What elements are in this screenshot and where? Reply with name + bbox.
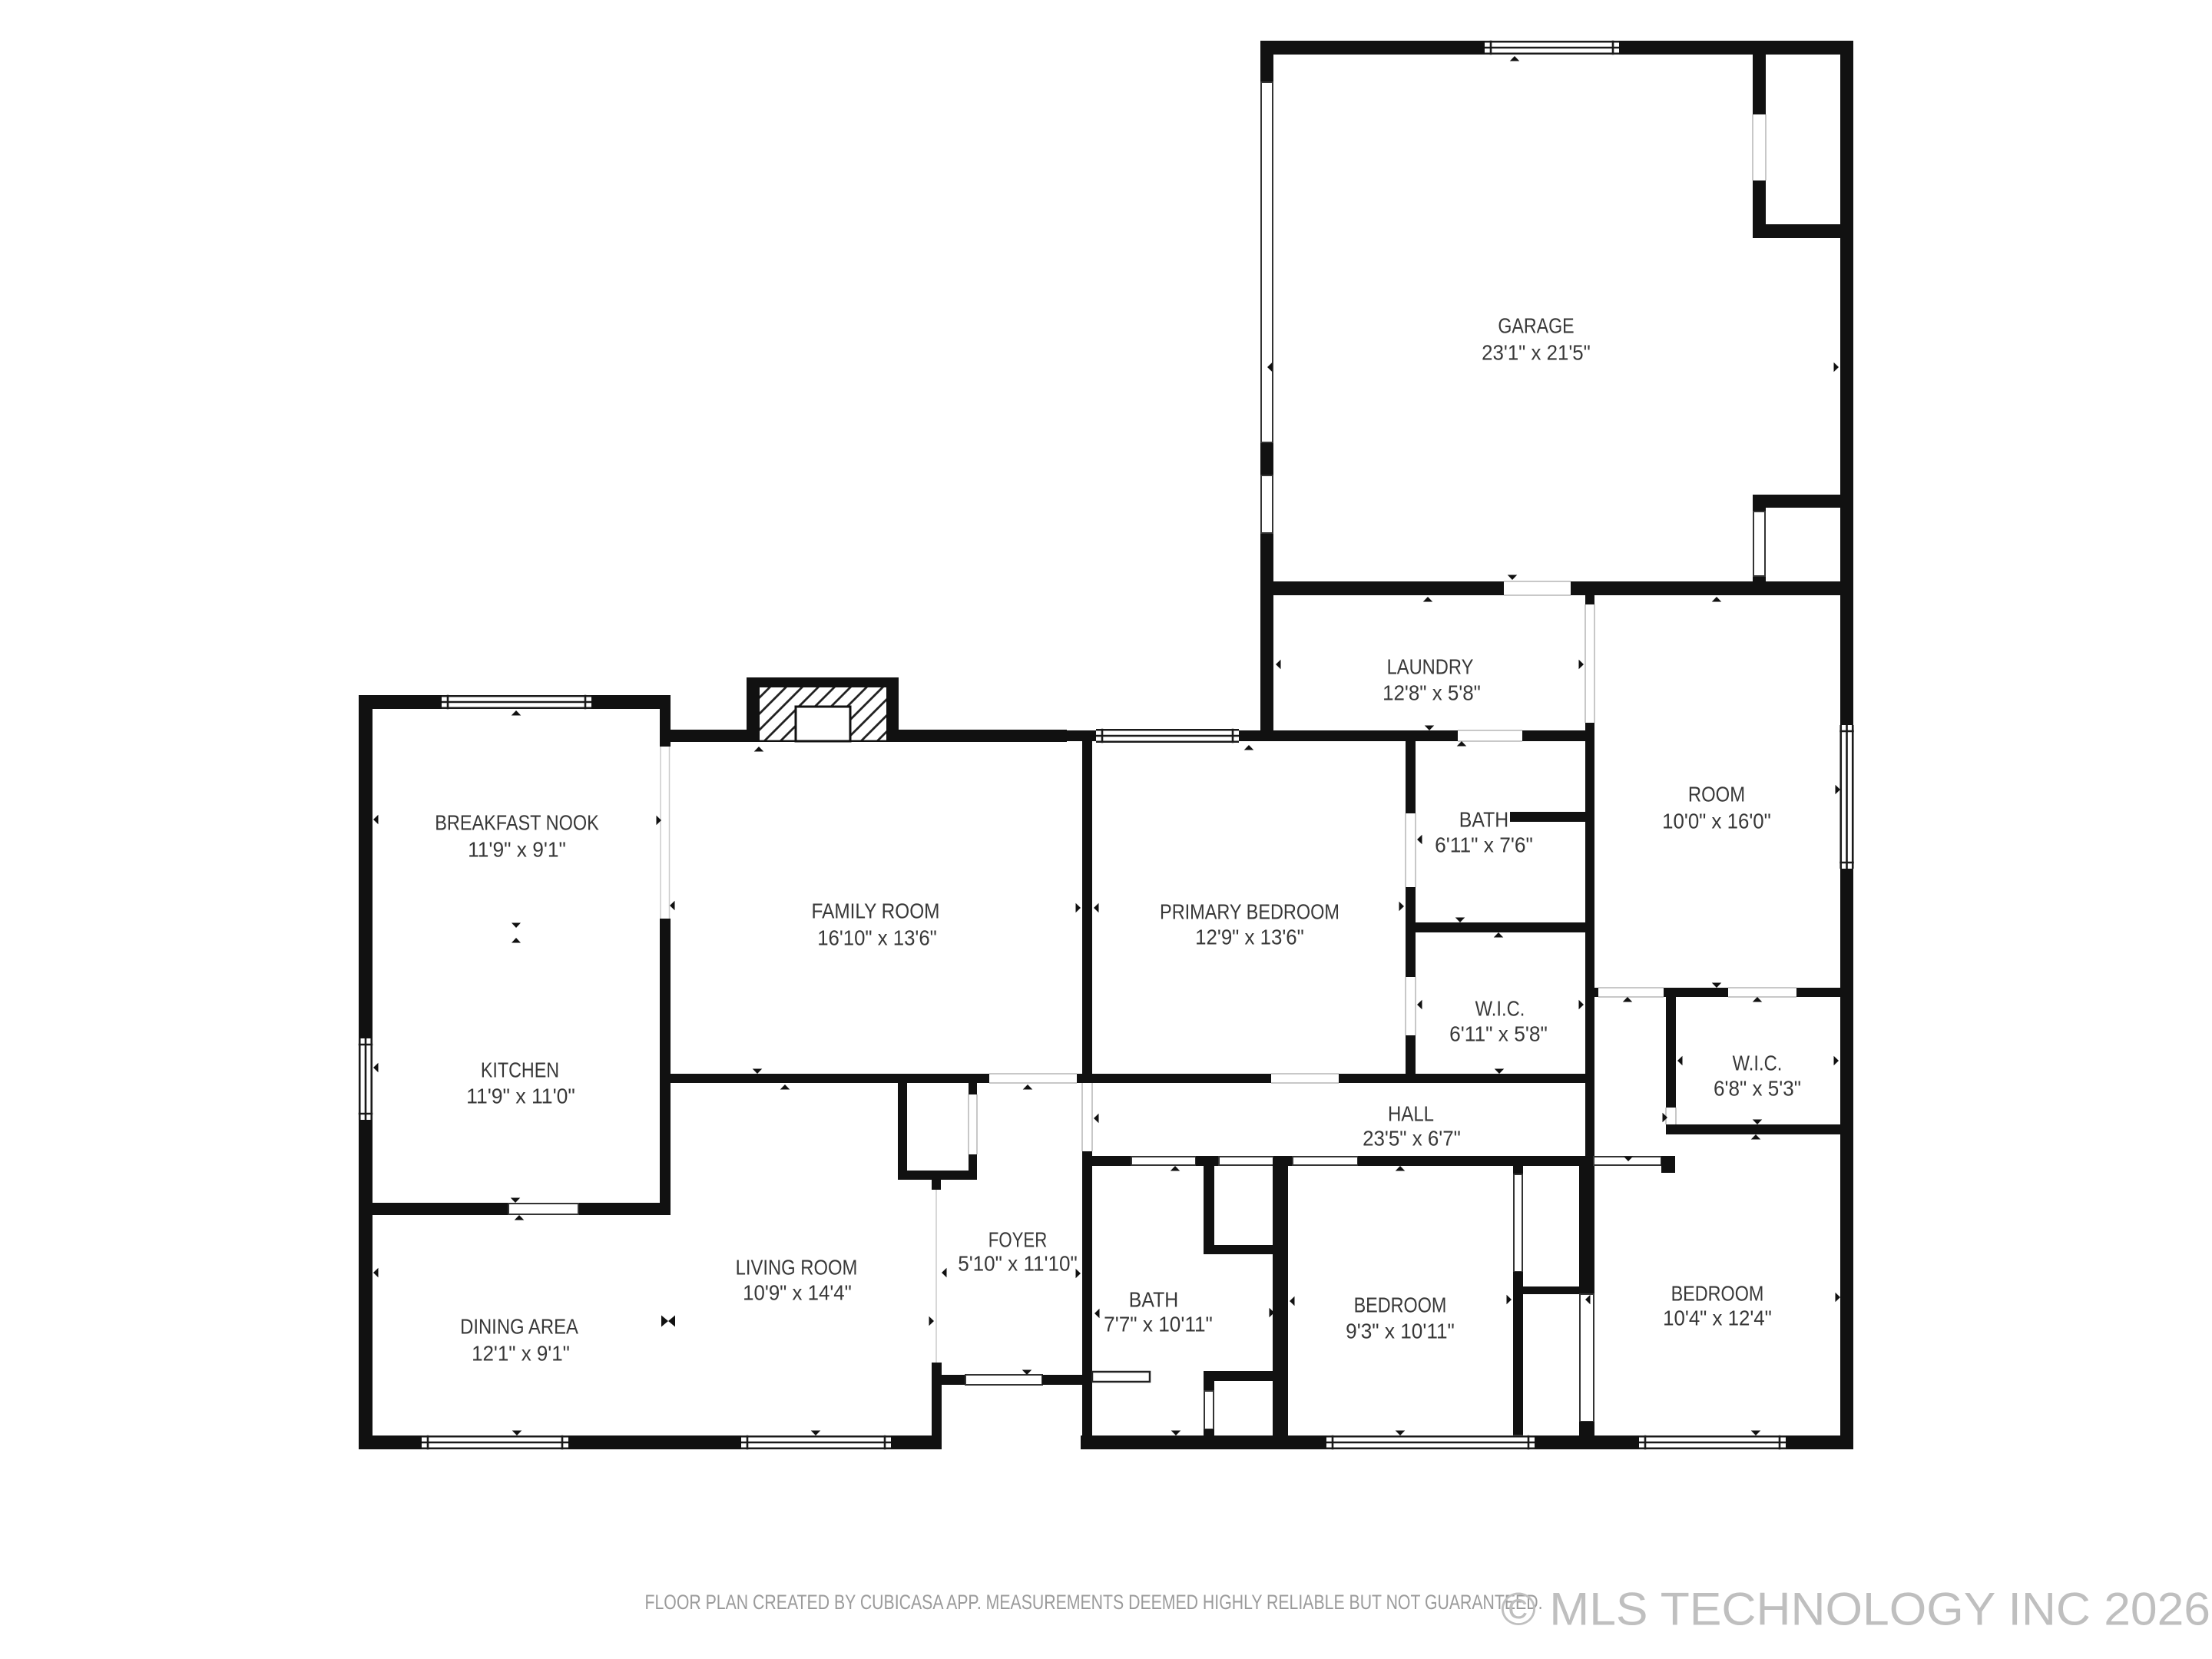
svg-text:10'4" x 12'4": 10'4" x 12'4" xyxy=(1663,1306,1772,1330)
svg-text:12'8" x 5'8": 12'8" x 5'8" xyxy=(1382,681,1481,705)
svg-text:23'5" x 6'7": 23'5" x 6'7" xyxy=(1363,1127,1461,1151)
svg-text:10'9" x 14'4": 10'9" x 14'4" xyxy=(743,1281,852,1305)
svg-text:ROOM: ROOM xyxy=(1688,783,1745,806)
svg-text:12'1" x 9'1": 12'1" x 9'1" xyxy=(472,1342,570,1366)
svg-text:BEDROOM: BEDROOM xyxy=(1671,1282,1764,1306)
svg-text:DINING AREA: DINING AREA xyxy=(460,1315,578,1339)
svg-text:BEDROOM: BEDROOM xyxy=(1354,1293,1447,1317)
svg-text:FLOOR PLAN CREATED BY CUBICASA: FLOOR PLAN CREATED BY CUBICASA APP. MEAS… xyxy=(645,1591,1543,1614)
svg-text:KITCHEN: KITCHEN xyxy=(481,1058,559,1082)
svg-text:BATH: BATH xyxy=(1459,808,1508,832)
svg-text:6'11" x 7'6": 6'11" x 7'6" xyxy=(1435,833,1533,857)
svg-text:LIVING ROOM: LIVING ROOM xyxy=(736,1256,858,1280)
svg-text:HALL: HALL xyxy=(1388,1102,1434,1126)
svg-text:9'3" x 10'11": 9'3" x 10'11" xyxy=(1346,1320,1455,1343)
svg-text:10'0" x 16'0": 10'0" x 16'0" xyxy=(1662,810,1771,833)
svg-text:7'7" x 10'11": 7'7" x 10'11" xyxy=(1104,1313,1213,1336)
svg-text:23'1" x 21'5": 23'1" x 21'5" xyxy=(1482,341,1591,365)
svg-text:FAMILY ROOM: FAMILY ROOM xyxy=(812,899,940,923)
svg-text:W.I.C.: W.I.C. xyxy=(1733,1051,1783,1075)
svg-text:W.I.C.: W.I.C. xyxy=(1475,997,1525,1021)
svg-text:GARAGE: GARAGE xyxy=(1498,314,1574,338)
svg-text:BATH: BATH xyxy=(1129,1288,1178,1312)
svg-text:6'8" x 5'3": 6'8" x 5'3" xyxy=(1714,1077,1801,1101)
svg-text:BREAKFAST NOOK: BREAKFAST NOOK xyxy=(435,811,599,835)
svg-text:PRIMARY BEDROOM: PRIMARY BEDROOM xyxy=(1160,900,1339,924)
svg-text:6'11" x 5'8": 6'11" x 5'8" xyxy=(1449,1022,1548,1046)
svg-text:LAUNDRY: LAUNDRY xyxy=(1387,655,1474,679)
svg-text:FOYER: FOYER xyxy=(988,1228,1048,1252)
svg-text:5'10" x 11'10": 5'10" x 11'10" xyxy=(958,1252,1078,1276)
svg-text:© MLS TECHNOLOGY INC 2026: © MLS TECHNOLOGY INC 2026 xyxy=(1501,1584,2210,1635)
svg-text:11'9" x 11'0": 11'9" x 11'0" xyxy=(466,1084,575,1108)
svg-text:12'9" x 13'6": 12'9" x 13'6" xyxy=(1195,926,1304,949)
svg-text:16'10" x 13'6": 16'10" x 13'6" xyxy=(817,926,937,950)
svg-text:11'9" x 9'1": 11'9" x 9'1" xyxy=(468,838,566,862)
